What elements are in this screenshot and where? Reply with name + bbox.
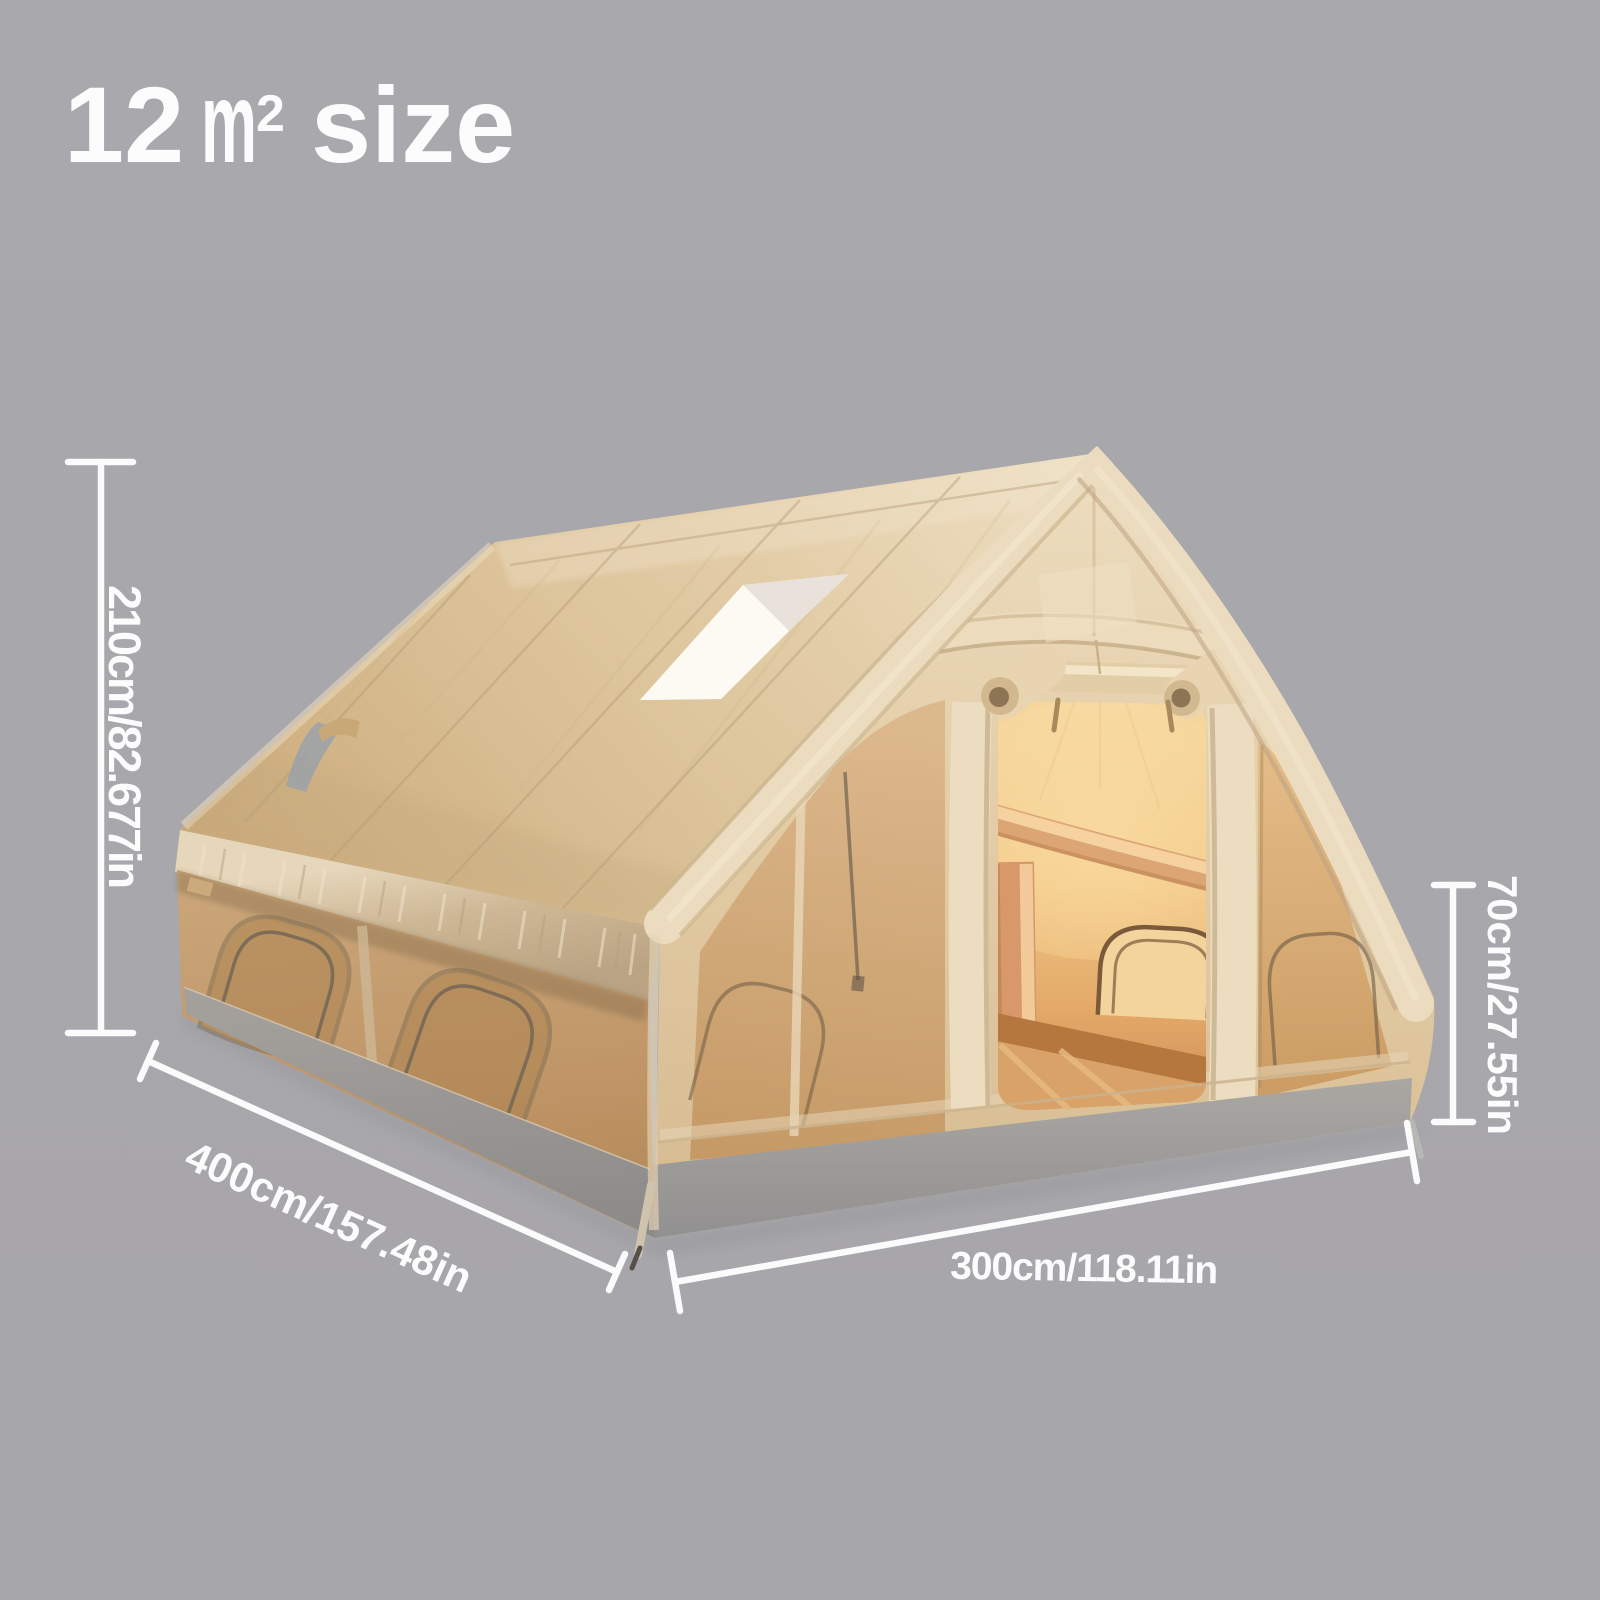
svg-text:m: m — [201, 59, 257, 187]
svg-text:210cm/82.677in: 210cm/82.677in — [99, 585, 150, 889]
svg-text:70cm/27.55in: 70cm/27.55in — [1479, 875, 1526, 1135]
svg-text:size: size — [311, 64, 515, 185]
svg-text:12: 12 — [64, 64, 184, 185]
svg-text:2: 2 — [256, 85, 285, 143]
svg-text:300cm/118.11in: 300cm/118.11in — [950, 1245, 1219, 1293]
